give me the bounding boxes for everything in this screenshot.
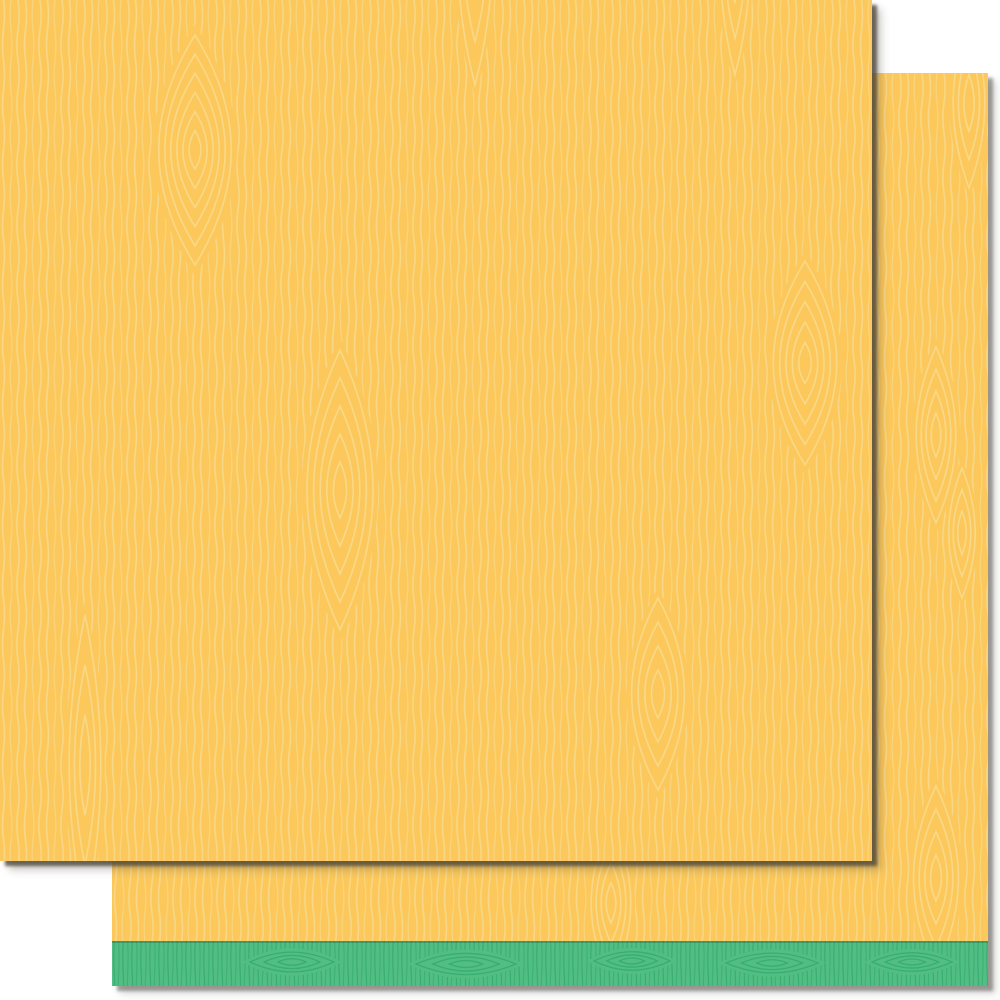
product-photo-backdrop bbox=[0, 0, 1000, 1000]
front-paper-sheet bbox=[0, 0, 872, 861]
front-sheet-yellow-woodgrain bbox=[0, 0, 872, 861]
